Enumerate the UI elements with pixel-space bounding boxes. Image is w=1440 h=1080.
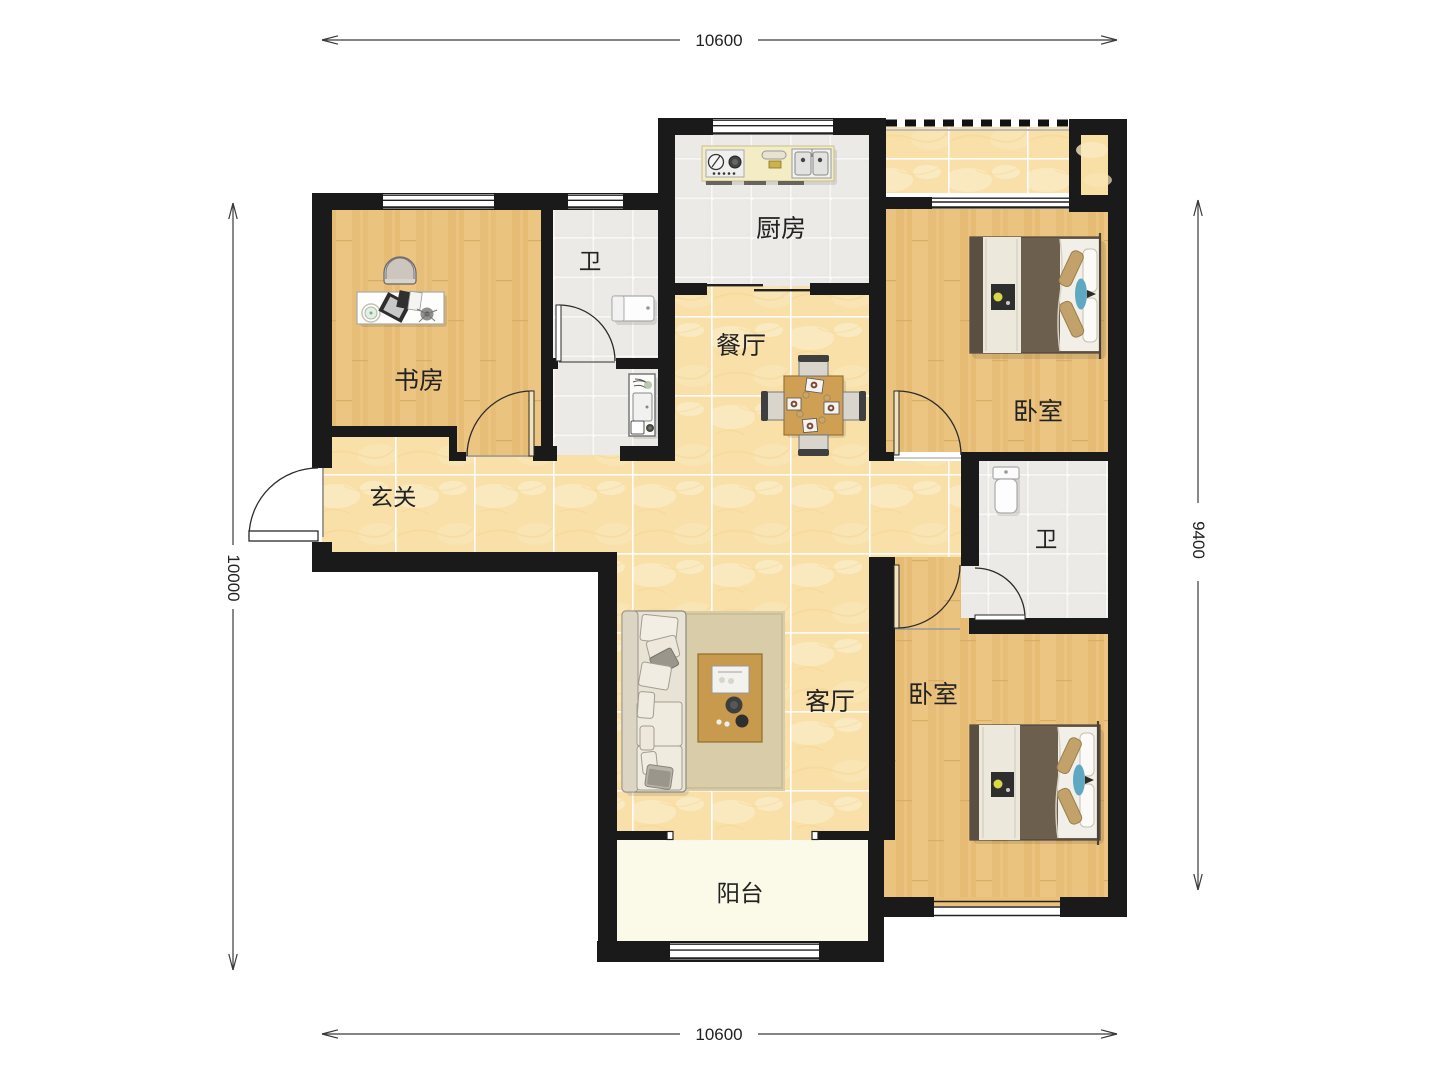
svg-text:9400: 9400 <box>1189 521 1208 559</box>
svg-text:10600: 10600 <box>695 1025 742 1044</box>
svg-text:10000: 10000 <box>224 554 243 601</box>
svg-text:10600: 10600 <box>695 31 742 50</box>
